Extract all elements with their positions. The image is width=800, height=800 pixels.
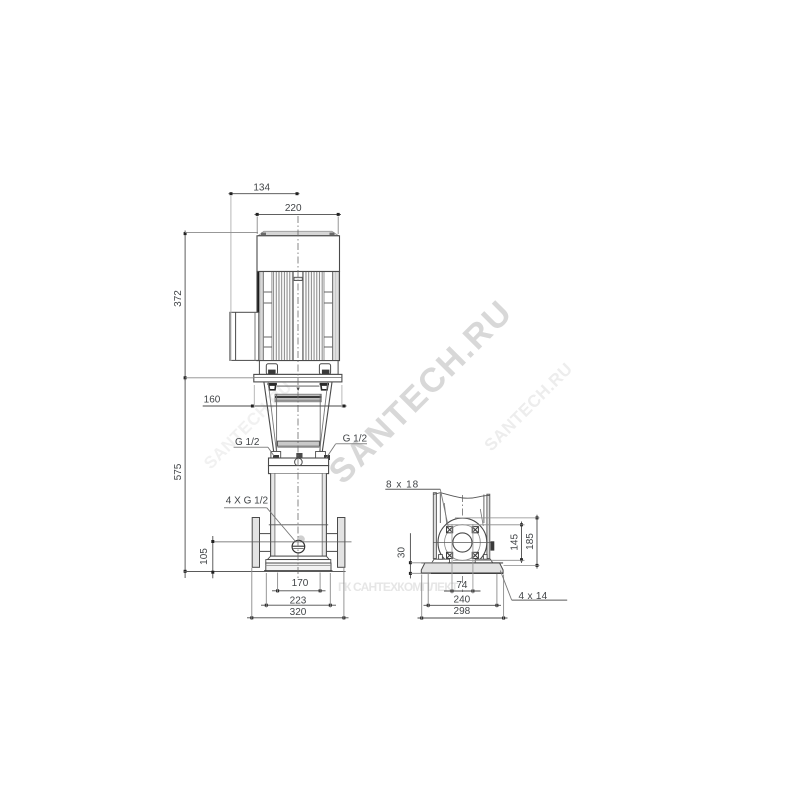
- svg-text:298: 298: [454, 606, 471, 617]
- svg-text:134: 134: [253, 183, 270, 194]
- svg-text:320: 320: [290, 607, 307, 618]
- svg-text:575: 575: [173, 463, 184, 480]
- svg-text:240: 240: [454, 594, 471, 605]
- svg-text:170: 170: [292, 578, 309, 589]
- svg-text:G 1/2: G 1/2: [235, 437, 260, 448]
- svg-text:372: 372: [173, 290, 184, 307]
- svg-text:185: 185: [525, 533, 536, 550]
- svg-text:105: 105: [199, 548, 210, 565]
- svg-text:4 X G 1/2: 4 X G 1/2: [226, 496, 269, 507]
- svg-text:ГК САНТЕХКОМПЛЕКТ: ГК САНТЕХКОМПЛЕКТ: [338, 580, 459, 594]
- svg-text:30: 30: [397, 547, 408, 559]
- svg-text:220: 220: [285, 203, 302, 214]
- svg-text:145: 145: [509, 534, 520, 551]
- svg-text:G 1/2: G 1/2: [343, 434, 368, 445]
- svg-text:160: 160: [204, 395, 221, 406]
- svg-text:74: 74: [456, 580, 468, 591]
- svg-text:223: 223: [290, 595, 307, 606]
